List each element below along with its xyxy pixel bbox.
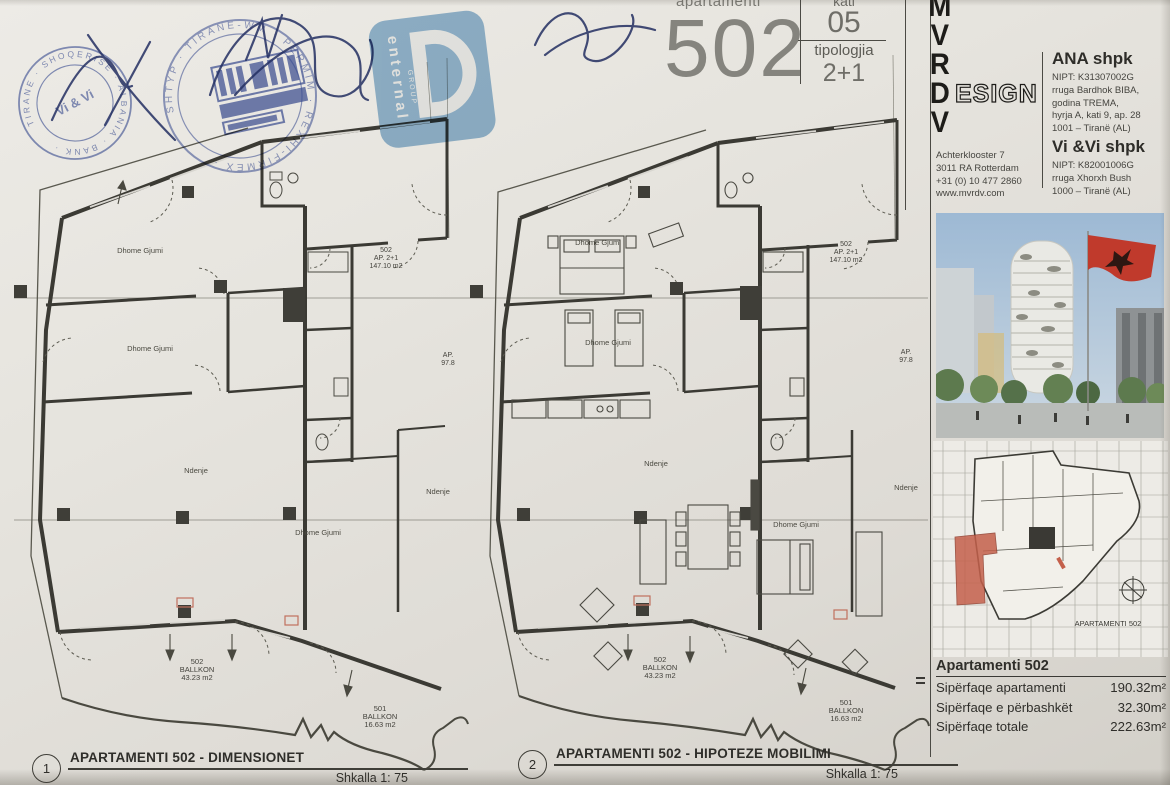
summary-title: Apartamenti 502 [936,658,1166,677]
mvrdv-address-line: Achterklooster 7 [936,150,1022,163]
key-plan: APARTAMENTI 502 [933,441,1168,657]
room-label-bedroom1-right: Dhome Gjumi [575,238,621,247]
unit-tag-left: 502 AP. 2+1 147.10 m2 [369,247,402,270]
header-divider-2 [905,0,906,210]
room-label-bedroom3-left: Dhome Gjumi [295,528,341,537]
svg-text:AP.: AP. [443,352,453,359]
plan-right-title: APARTAMENTI 502 - HIPOTEZE MOBILIMI [556,746,831,761]
svg-text:147.10 m2: 147.10 m2 [369,263,402,270]
area-summary: Apartamenti 502 Sipërfaqe apartamenti 19… [936,658,1166,739]
contact-ana-line: godina TREMA, [1052,98,1141,111]
room-label-bedroom2-right: Dhome Gjumi [585,338,631,347]
tipologjia-label: tipologjia [800,42,888,59]
svg-text:AP. 2+1: AP. 2+1 [834,249,858,256]
plan-left-title: APARTAMENTI 502 - DIMENSIONET [70,750,304,765]
kati-value: 05 [802,6,886,40]
keyplan-caption: APARTAMENTI 502 [1075,619,1142,628]
contact-vivi-line: NIPT: K82001006G [1052,160,1145,173]
svg-text:147.10 m2: 147.10 m2 [829,257,862,264]
scanned-floorplan-sheet: Dhome Gjumi Dhome Gjumi Dhome Gjumi Nden… [0,0,1170,785]
room-label-neighbor-living-right: Ndenje [894,483,918,492]
tipologjia-value: 2+1 [800,59,888,88]
contact-vivi-line: 1000 – Tiranë (AL) [1052,186,1145,199]
mvrdv-logo: M V R D V ESIGN [915,0,1050,144]
svg-text:97.8: 97.8 [899,357,913,364]
paper-edge-shadow-top [0,0,1170,6]
svg-text:43.23 m2: 43.23 m2 [181,673,212,682]
room-label-living-left: Ndenje [184,466,208,475]
mvrdv-address: Achterklooster 7 3011 RA Rotterdam +31 (… [936,150,1022,201]
svg-text:AP.: AP. [901,349,911,356]
summary-row-total: Sipërfaqe totale 222.63m² [936,719,1166,734]
summary-row-apartment: Sipërfaqe apartamenti 190.32m² [936,680,1166,695]
summary-label: Sipërfaqe totale [936,719,1028,734]
paper-edge-shadow-bottom [0,769,1170,785]
svg-text:16.63 m2: 16.63 m2 [364,720,395,729]
svg-text:43.23 m2: 43.23 m2 [644,671,675,680]
room-label-bedroom1-left: Dhome Gjumi [117,246,163,255]
plan-right-title-underline [554,764,958,766]
contacts-divider [1042,52,1043,188]
summary-value: 32.30m² [1118,700,1166,715]
contact-ana-line: 1001 – Tiranë (AL) [1052,123,1141,136]
svg-text:97.8: 97.8 [441,360,455,367]
room-label-bedroom3-right: Dhome Gjumi [773,520,819,529]
summary-label: Sipërfaqe apartamenti [936,680,1066,695]
contact-ana-line: NIPT: K31307002G [1052,72,1141,85]
floorplan-drawing: Dhome Gjumi Dhome Gjumi Dhome Gjumi Nden… [0,0,935,785]
mvrdv-address-line: www.mvrdv.com [936,188,1022,201]
contact-vivi: Vi &Vi shpk NIPT: K82001006G rruga Xhorx… [1052,136,1145,198]
svg-text:502: 502 [840,241,852,248]
summary-label: Sipërfaqe e përbashkët [936,700,1072,715]
summary-value: 222.63m² [1110,719,1166,734]
balcony-501-left: 501 BALLKON 16.63 m2 [363,704,398,729]
balcony-501-right: 501 BALLKON 16.63 m2 [829,698,864,723]
furniture [512,173,882,675]
ap-small-right: AP. 97.8 [899,349,913,364]
apartment-number: 502 [664,8,798,90]
svg-text:502: 502 [380,247,392,254]
summary-value: 190.32m² [1110,680,1166,695]
balcony-502-left: 502 BALLKON 43.23 m2 [180,657,215,682]
tower [1011,241,1073,393]
mvrdv-letter-v2: V [931,106,950,139]
contact-ana: ANA shpk NIPT: K31307002G rruga Bardhok … [1052,48,1141,135]
room-label-bedroom2-left: Dhome Gjumi [127,344,173,353]
kati-underline [798,40,886,41]
contact-vivi-name: Vi &Vi shpk [1052,136,1145,158]
mvrdv-address-line: 3011 RA Rotterdam [936,163,1022,176]
contact-ana-line: rruga Bardhok BIBA, [1052,85,1141,98]
plan-right-mobilimi: Dhome Gjumi Dhome Gjumi Dhome Gjumi Nden… [470,120,929,770]
balcony-502-right: 502 BALLKON 43.23 m2 [643,655,678,680]
summary-row-common: Sipërfaqe e përbashkët 32.30m² [936,700,1166,715]
building-photo [936,213,1164,438]
keyplan-core [1029,527,1055,549]
summary-tick-marks [916,677,925,687]
svg-text:16.63 m2: 16.63 m2 [830,714,861,723]
mvrdv-address-line: +31 (0) 10 477 2860 [936,176,1022,189]
ap-small-left: AP. 97.8 [441,352,455,367]
room-label-living-right: Ndenje [644,459,668,468]
svg-text:AP. 2+1: AP. 2+1 [374,255,398,262]
plan-left-dimensionet: Dhome Gjumi Dhome Gjumi Dhome Gjumi Nden… [14,119,468,770]
paper-edge-shadow-right [1160,0,1170,785]
contact-ana-line: hyrja A, kati 9, ap. 28 [1052,110,1141,123]
room-label-neighbor-living-left: Ndenje [426,487,450,496]
contact-ana-name: ANA shpk [1052,48,1141,70]
mvrdv-design-suffix: ESIGN [955,80,1038,108]
contact-vivi-line: rruga Xhorxh Bush [1052,173,1145,186]
